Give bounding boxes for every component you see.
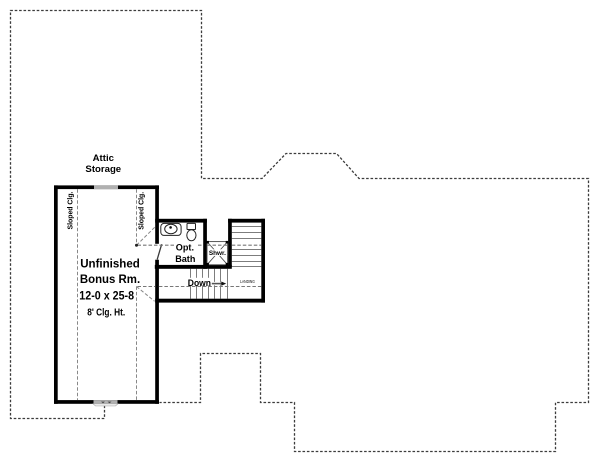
svg-text:8' Clg. Ht.: 8' Clg. Ht. xyxy=(87,308,125,319)
svg-text:12-0 x 25-8: 12-0 x 25-8 xyxy=(79,290,134,303)
svg-text:Sloped Clg.: Sloped Clg. xyxy=(67,191,74,229)
svg-text:Sloped Clg.: Sloped Clg. xyxy=(138,192,145,230)
svg-text:Shwr.: Shwr. xyxy=(209,250,226,257)
svg-text:Down: Down xyxy=(188,278,211,289)
svg-text:Attic: Attic xyxy=(93,153,115,164)
svg-text:Bath: Bath xyxy=(175,254,195,264)
svg-text:Storage: Storage xyxy=(85,164,121,175)
svg-text:Bonus Rm.: Bonus Rm. xyxy=(80,273,140,286)
svg-text:Opt.: Opt. xyxy=(176,243,194,253)
svg-text:Unfinished: Unfinished xyxy=(80,257,140,270)
svg-text:LANDING: LANDING xyxy=(240,279,255,284)
